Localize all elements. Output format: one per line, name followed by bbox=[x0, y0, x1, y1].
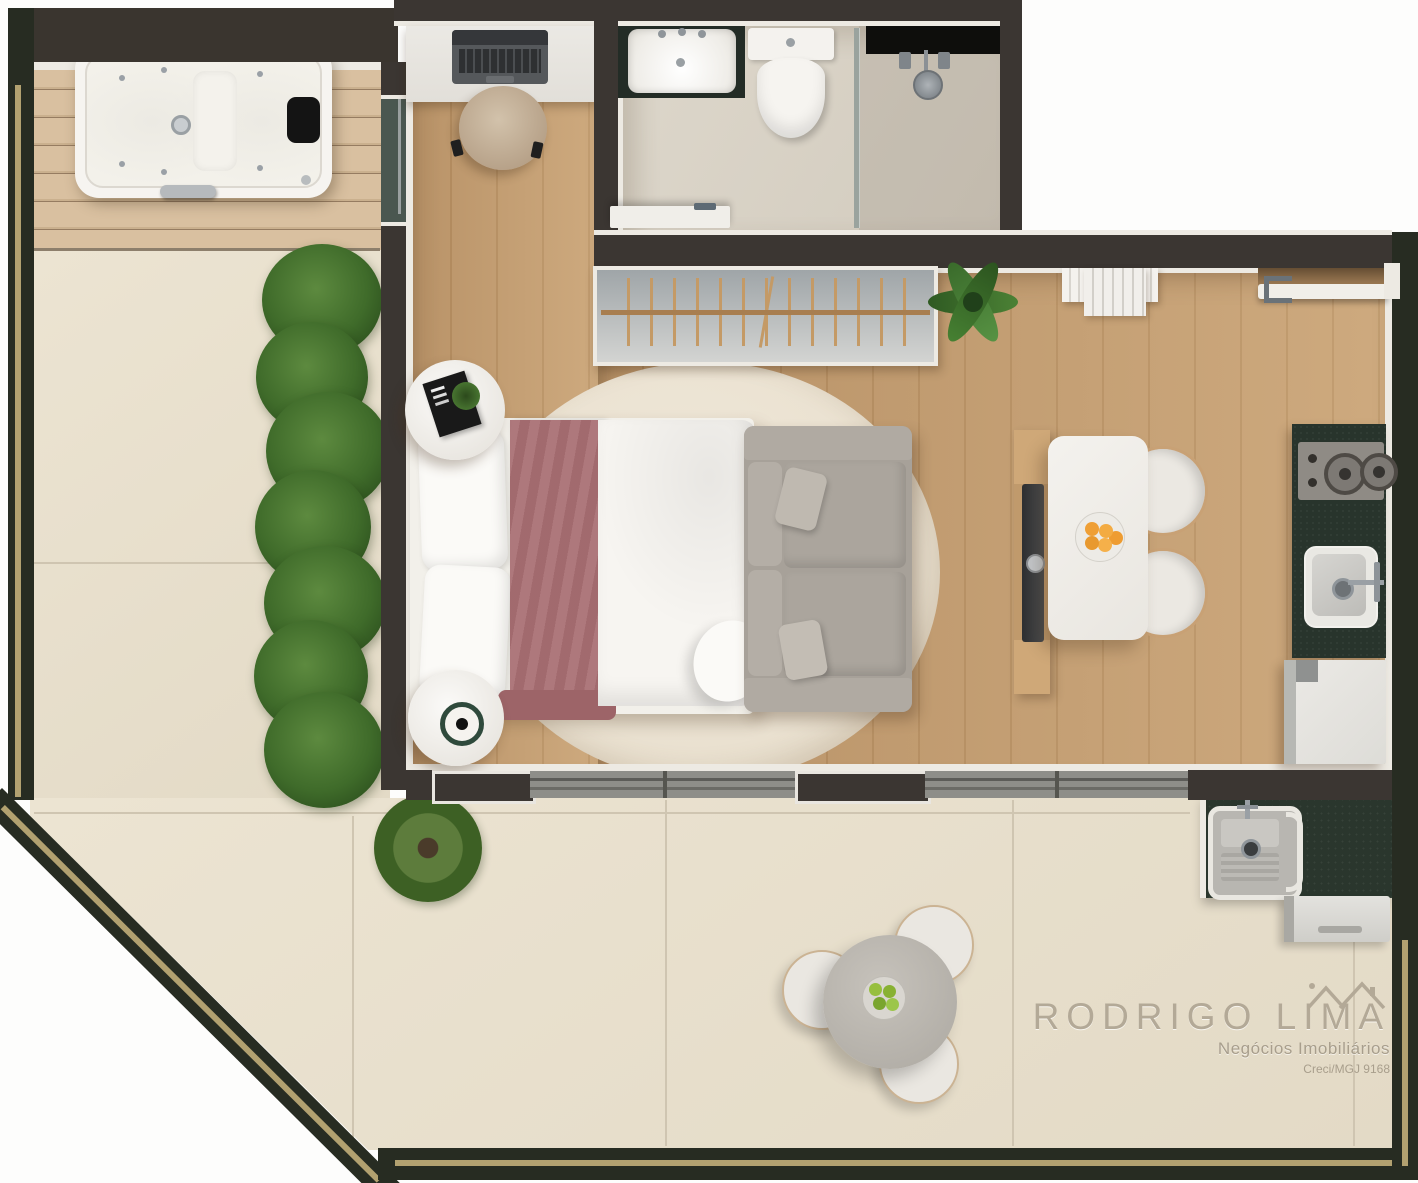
watermark-brand: RODRIGO LIMA bbox=[970, 996, 1390, 1038]
jacuzzi-drain bbox=[171, 115, 191, 135]
bed-runner-blanket bbox=[510, 420, 604, 714]
tv-mount bbox=[1026, 554, 1045, 573]
glass-door-rail bbox=[398, 99, 401, 214]
laundry-faucet bbox=[1245, 799, 1250, 819]
shower-head bbox=[913, 70, 943, 100]
entry-door-jamb bbox=[1384, 263, 1400, 299]
cooktop-knob bbox=[1308, 454, 1317, 463]
washer-left-edge bbox=[1284, 896, 1294, 942]
watermark-tagline: Negócios Imobiliários bbox=[970, 1039, 1390, 1059]
laptop-keyboard bbox=[459, 49, 541, 73]
sliding-glass-door bbox=[925, 771, 1188, 798]
laundry-drain bbox=[1241, 839, 1261, 859]
service-counter-edge bbox=[1200, 796, 1206, 898]
open-wardrobe-rack bbox=[593, 266, 938, 366]
sofa-arm-bottom bbox=[744, 678, 912, 712]
nightstand-lamp bbox=[440, 702, 484, 746]
wall-trim-right-interior bbox=[1385, 268, 1392, 768]
books-row bbox=[1084, 268, 1146, 316]
potted-grass-plant bbox=[374, 794, 482, 902]
glass-divider bbox=[663, 771, 667, 798]
sofa-arm-top bbox=[744, 426, 912, 460]
wall-bottom-panel bbox=[795, 771, 931, 804]
laptop-screen bbox=[452, 30, 548, 45]
entry-door-leaf bbox=[1258, 284, 1388, 299]
watermark: RODRIGO LIMA Negócios Imobiliários Creci… bbox=[970, 996, 1390, 1076]
lamp-center bbox=[456, 718, 468, 730]
terrace-grout-line bbox=[34, 562, 272, 564]
kitchen-faucet-lever bbox=[1374, 562, 1380, 602]
brand-text-right-wrap: IMA bbox=[1303, 996, 1390, 1038]
hedge-bush bbox=[264, 692, 384, 808]
terrace-stripe-right bbox=[1402, 940, 1408, 1166]
cooktop-knob bbox=[1308, 478, 1317, 487]
wall-top-upper bbox=[394, 0, 1022, 26]
potted-plant-indoor bbox=[925, 255, 1021, 349]
jacuzzi-seat bbox=[193, 71, 237, 171]
glass-divider bbox=[1055, 771, 1059, 798]
wall-bottom-corner-left bbox=[406, 770, 432, 800]
terrace-grout-line bbox=[665, 800, 667, 1146]
fruit-bowl-apples bbox=[862, 976, 906, 1020]
jacuzzi-jet bbox=[257, 71, 263, 77]
floor-plan-render: RODRIGO LIMA Negócios Imobiliários Creci… bbox=[0, 0, 1418, 1183]
washing-machine bbox=[1284, 896, 1390, 942]
cooktop bbox=[1298, 442, 1384, 500]
laundry-pipe bbox=[1286, 812, 1303, 892]
wall-bathroom-right bbox=[1000, 2, 1022, 268]
jacuzzi bbox=[75, 45, 332, 198]
green-apples bbox=[869, 983, 882, 996]
magazine-text bbox=[431, 386, 445, 393]
nightstand-plant bbox=[452, 382, 480, 410]
wall-bottom-panel bbox=[432, 771, 536, 804]
bathroom-door-handle bbox=[694, 203, 716, 210]
burner-center bbox=[1339, 468, 1351, 480]
fridge-hinge bbox=[1296, 660, 1318, 682]
jacuzzi-jet bbox=[161, 169, 167, 175]
plant-center bbox=[963, 292, 983, 312]
shower-handle bbox=[938, 52, 950, 69]
refrigerator bbox=[1284, 660, 1386, 764]
kitchen-sink bbox=[1304, 546, 1378, 628]
burner-center bbox=[1373, 466, 1385, 478]
jacuzzi-headrest bbox=[287, 97, 320, 143]
terrace-grout-line bbox=[1012, 800, 1014, 1146]
fridge-left-edge bbox=[1284, 660, 1296, 764]
jacuzzi-jet bbox=[257, 165, 263, 171]
laptop-trackpad bbox=[486, 76, 514, 83]
terrace-grout-line bbox=[34, 812, 1190, 814]
oranges bbox=[1085, 522, 1099, 536]
laptop bbox=[452, 30, 548, 84]
wardrobe-rod bbox=[601, 310, 930, 315]
jacuzzi-jet bbox=[161, 67, 167, 73]
toilet-button bbox=[786, 38, 795, 47]
terrace-grout-line bbox=[352, 816, 354, 1146]
brand-text-left: RODRIGO L bbox=[1033, 996, 1304, 1037]
shower-floor bbox=[859, 26, 1000, 230]
laundry-faucet-handle bbox=[1237, 805, 1258, 809]
house-roof-icon bbox=[1304, 980, 1396, 1010]
outer-wall-left bbox=[8, 8, 34, 800]
watermark-license: Creci/MGJ 9168 bbox=[970, 1062, 1390, 1076]
sink-faucet bbox=[658, 30, 666, 38]
wall-service-top bbox=[1188, 770, 1392, 800]
terrace-stripe-bottom bbox=[395, 1160, 1408, 1166]
jacuzzi-jet bbox=[119, 75, 125, 81]
washer-handle bbox=[1318, 926, 1362, 933]
shower-handle bbox=[899, 52, 911, 69]
shower-niche bbox=[866, 26, 1000, 54]
sofa-back-cushion bbox=[748, 570, 782, 676]
shower-glass-partition bbox=[854, 28, 859, 228]
fruit-plate bbox=[1075, 512, 1125, 562]
sink-drain bbox=[676, 58, 685, 67]
terrace-stripe-left bbox=[15, 85, 21, 797]
entry-door-handle-stem bbox=[1264, 276, 1269, 303]
terrace-floor-bottom bbox=[30, 798, 1392, 1150]
outer-wall-top-deck bbox=[8, 8, 398, 62]
sliding-glass-door bbox=[530, 771, 795, 798]
jacuzzi-drain bbox=[301, 175, 311, 185]
jacuzzi-handle bbox=[160, 185, 216, 198]
sofa bbox=[744, 426, 912, 712]
deck-glass-door bbox=[381, 95, 406, 226]
cooktop-burner bbox=[1360, 453, 1398, 491]
jacuzzi-jet bbox=[119, 161, 125, 167]
